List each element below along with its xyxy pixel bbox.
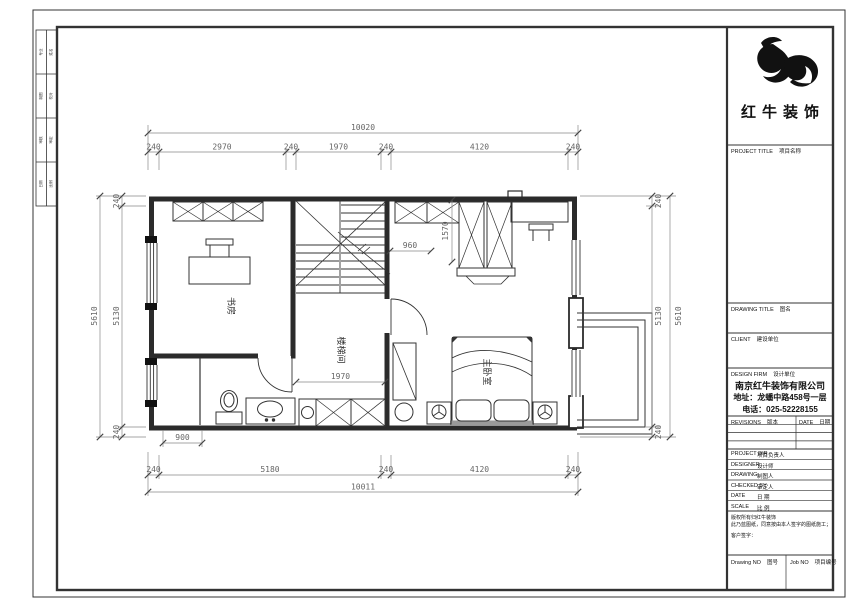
field-label-cn: 日期: [819, 420, 830, 426]
disclaimer-line2: 此乃蓝图纸，同意按由本人签字的图纸施工；: [731, 521, 831, 528]
sign-cell-text: 审核: [38, 136, 43, 144]
dim-label: 240: [284, 143, 299, 152]
field-project-title: PROJECT TITLE项目名称: [731, 147, 801, 155]
field-label-cn: 项目编号: [815, 560, 837, 566]
master-bedroom: [391, 202, 568, 425]
field-label-en: DESIGNER: [731, 462, 760, 468]
dim-label: 240: [112, 425, 121, 440]
field-client: CLIENT建设单位: [731, 335, 779, 343]
field-label-en: DESIGN FIRM: [731, 372, 767, 378]
row-checked-by-cn: 审定人: [757, 483, 774, 491]
dim-label: 1970: [329, 143, 348, 152]
hall-cabinet: [299, 399, 385, 426]
field-label-cn: 图名: [780, 307, 791, 313]
field-label-en: REVISIONS: [731, 420, 761, 426]
field-label-en: DRAWING TITLE: [731, 307, 774, 313]
dim-label: 4120: [470, 465, 489, 474]
revisions-header: REVISIONS版本: [731, 418, 778, 426]
field-label-en: DATE: [799, 420, 813, 426]
sign-cell-text: 比例: [48, 180, 53, 188]
dim-closet-run: 1570: [441, 221, 450, 240]
drawing-no-label: Drawing NO图号: [731, 558, 778, 566]
field-label-en: CLIENT: [731, 337, 751, 343]
dim-closet-gap: 960: [403, 241, 418, 250]
dim-label: 5130: [654, 306, 663, 325]
disclaimer-line3: 客户签字：: [731, 532, 756, 539]
field-label-en: PROJECT TITLE: [731, 149, 773, 155]
dim-label: 2970: [212, 143, 231, 152]
row-designer-cn: 设计师: [757, 462, 774, 470]
row-project-dir-cn: 项目负责人: [757, 451, 785, 459]
dim-label: 240: [146, 143, 161, 152]
bay-window: [577, 313, 652, 434]
row-date: DATE: [731, 493, 745, 499]
field-label-en: SCALE: [731, 504, 749, 510]
sign-cell-text: 审定: [48, 136, 53, 144]
dim-label: 240: [654, 194, 663, 209]
field-label-cn: 版本: [767, 420, 778, 426]
row-designer: DESIGNER: [731, 462, 760, 468]
row-scale: SCALE: [731, 504, 749, 510]
sign-cell-text: 制图: [38, 92, 43, 100]
dim-label: 240: [566, 143, 581, 152]
windows: [145, 236, 582, 407]
dim-label: 240: [379, 465, 394, 474]
bathroom: [200, 358, 295, 425]
room-label-bedroom: 主卧室: [482, 358, 493, 385]
field-label-cn: 图号: [767, 560, 778, 566]
field-label-en: DRAWING: [731, 472, 757, 478]
logo-bull-icon: [757, 37, 818, 87]
field-label-cn: 设计单位: [773, 372, 795, 378]
room-label-study: 书房: [226, 297, 237, 315]
disclaimer-line1: 版权所有归红牛装饰: [731, 514, 776, 521]
sign-cell-text: 校对: [48, 92, 53, 100]
dim-label: 5130: [112, 306, 121, 325]
company-name: 南京红牛装饰有限公司: [727, 379, 833, 392]
field-design-firm: DESIGN FIRM设计单位: [731, 370, 795, 378]
dim-hall-width: 1970: [331, 372, 350, 381]
field-label-cn: 项目名称: [779, 149, 801, 155]
row-drawing-cn: 制图人: [757, 472, 774, 480]
dim-label: 900: [175, 433, 190, 442]
row-date-cn: 日 期: [757, 493, 770, 501]
dim-label: 240: [654, 425, 663, 440]
field-label-cn: 建设单位: [757, 337, 779, 343]
field-drawing-title: DRAWING TITLE图名: [731, 305, 791, 313]
stairwell: [296, 199, 390, 293]
company-address: 地址：龙蟠中路458号一层: [727, 392, 833, 403]
row-drawing: DRAWING: [731, 472, 757, 478]
dim-left-total: 5610: [90, 306, 99, 325]
bedroom-door: [391, 299, 427, 335]
dim-right-total: 5610: [674, 306, 683, 325]
dim-label: 4120: [470, 143, 489, 152]
sign-cell-text: 日期: [38, 180, 43, 188]
revisions-date-header: DATE日期: [799, 418, 830, 426]
exterior-walls: [151, 191, 575, 428]
dim-label: 240: [146, 465, 161, 474]
sign-cell-text: 姓名: [48, 48, 53, 56]
job-no-label: Job NO项目编号: [790, 558, 837, 566]
dim-label: 240: [566, 465, 581, 474]
row-scale-cn: 比 例: [757, 504, 770, 512]
drawing-sheet: 专业 姓名 制图 校对 审核 审定 日期 比例: [0, 0, 860, 608]
study-room: [173, 202, 263, 284]
logo-text: 红牛装饰: [727, 101, 833, 122]
company-phone: 电话：025-52228155: [727, 404, 833, 415]
room-label-stair: 楼梯间: [336, 336, 347, 363]
field-label-en: Drawing NO: [731, 560, 761, 566]
dim-bottom-total: 10011: [351, 483, 375, 492]
dimension-labels: 10020 240 2970 240 1970 240 4120 240 900…: [90, 123, 683, 492]
dim-label: 240: [379, 143, 394, 152]
field-label-en: DATE: [731, 493, 745, 499]
dim-label: 5180: [260, 465, 279, 474]
bathroom-door: [258, 358, 292, 392]
dim-label: 240: [112, 194, 121, 209]
dim-top-total: 10020: [351, 123, 375, 132]
sign-cell-text: 专业: [38, 48, 43, 56]
field-label-en: Job NO: [790, 560, 809, 566]
